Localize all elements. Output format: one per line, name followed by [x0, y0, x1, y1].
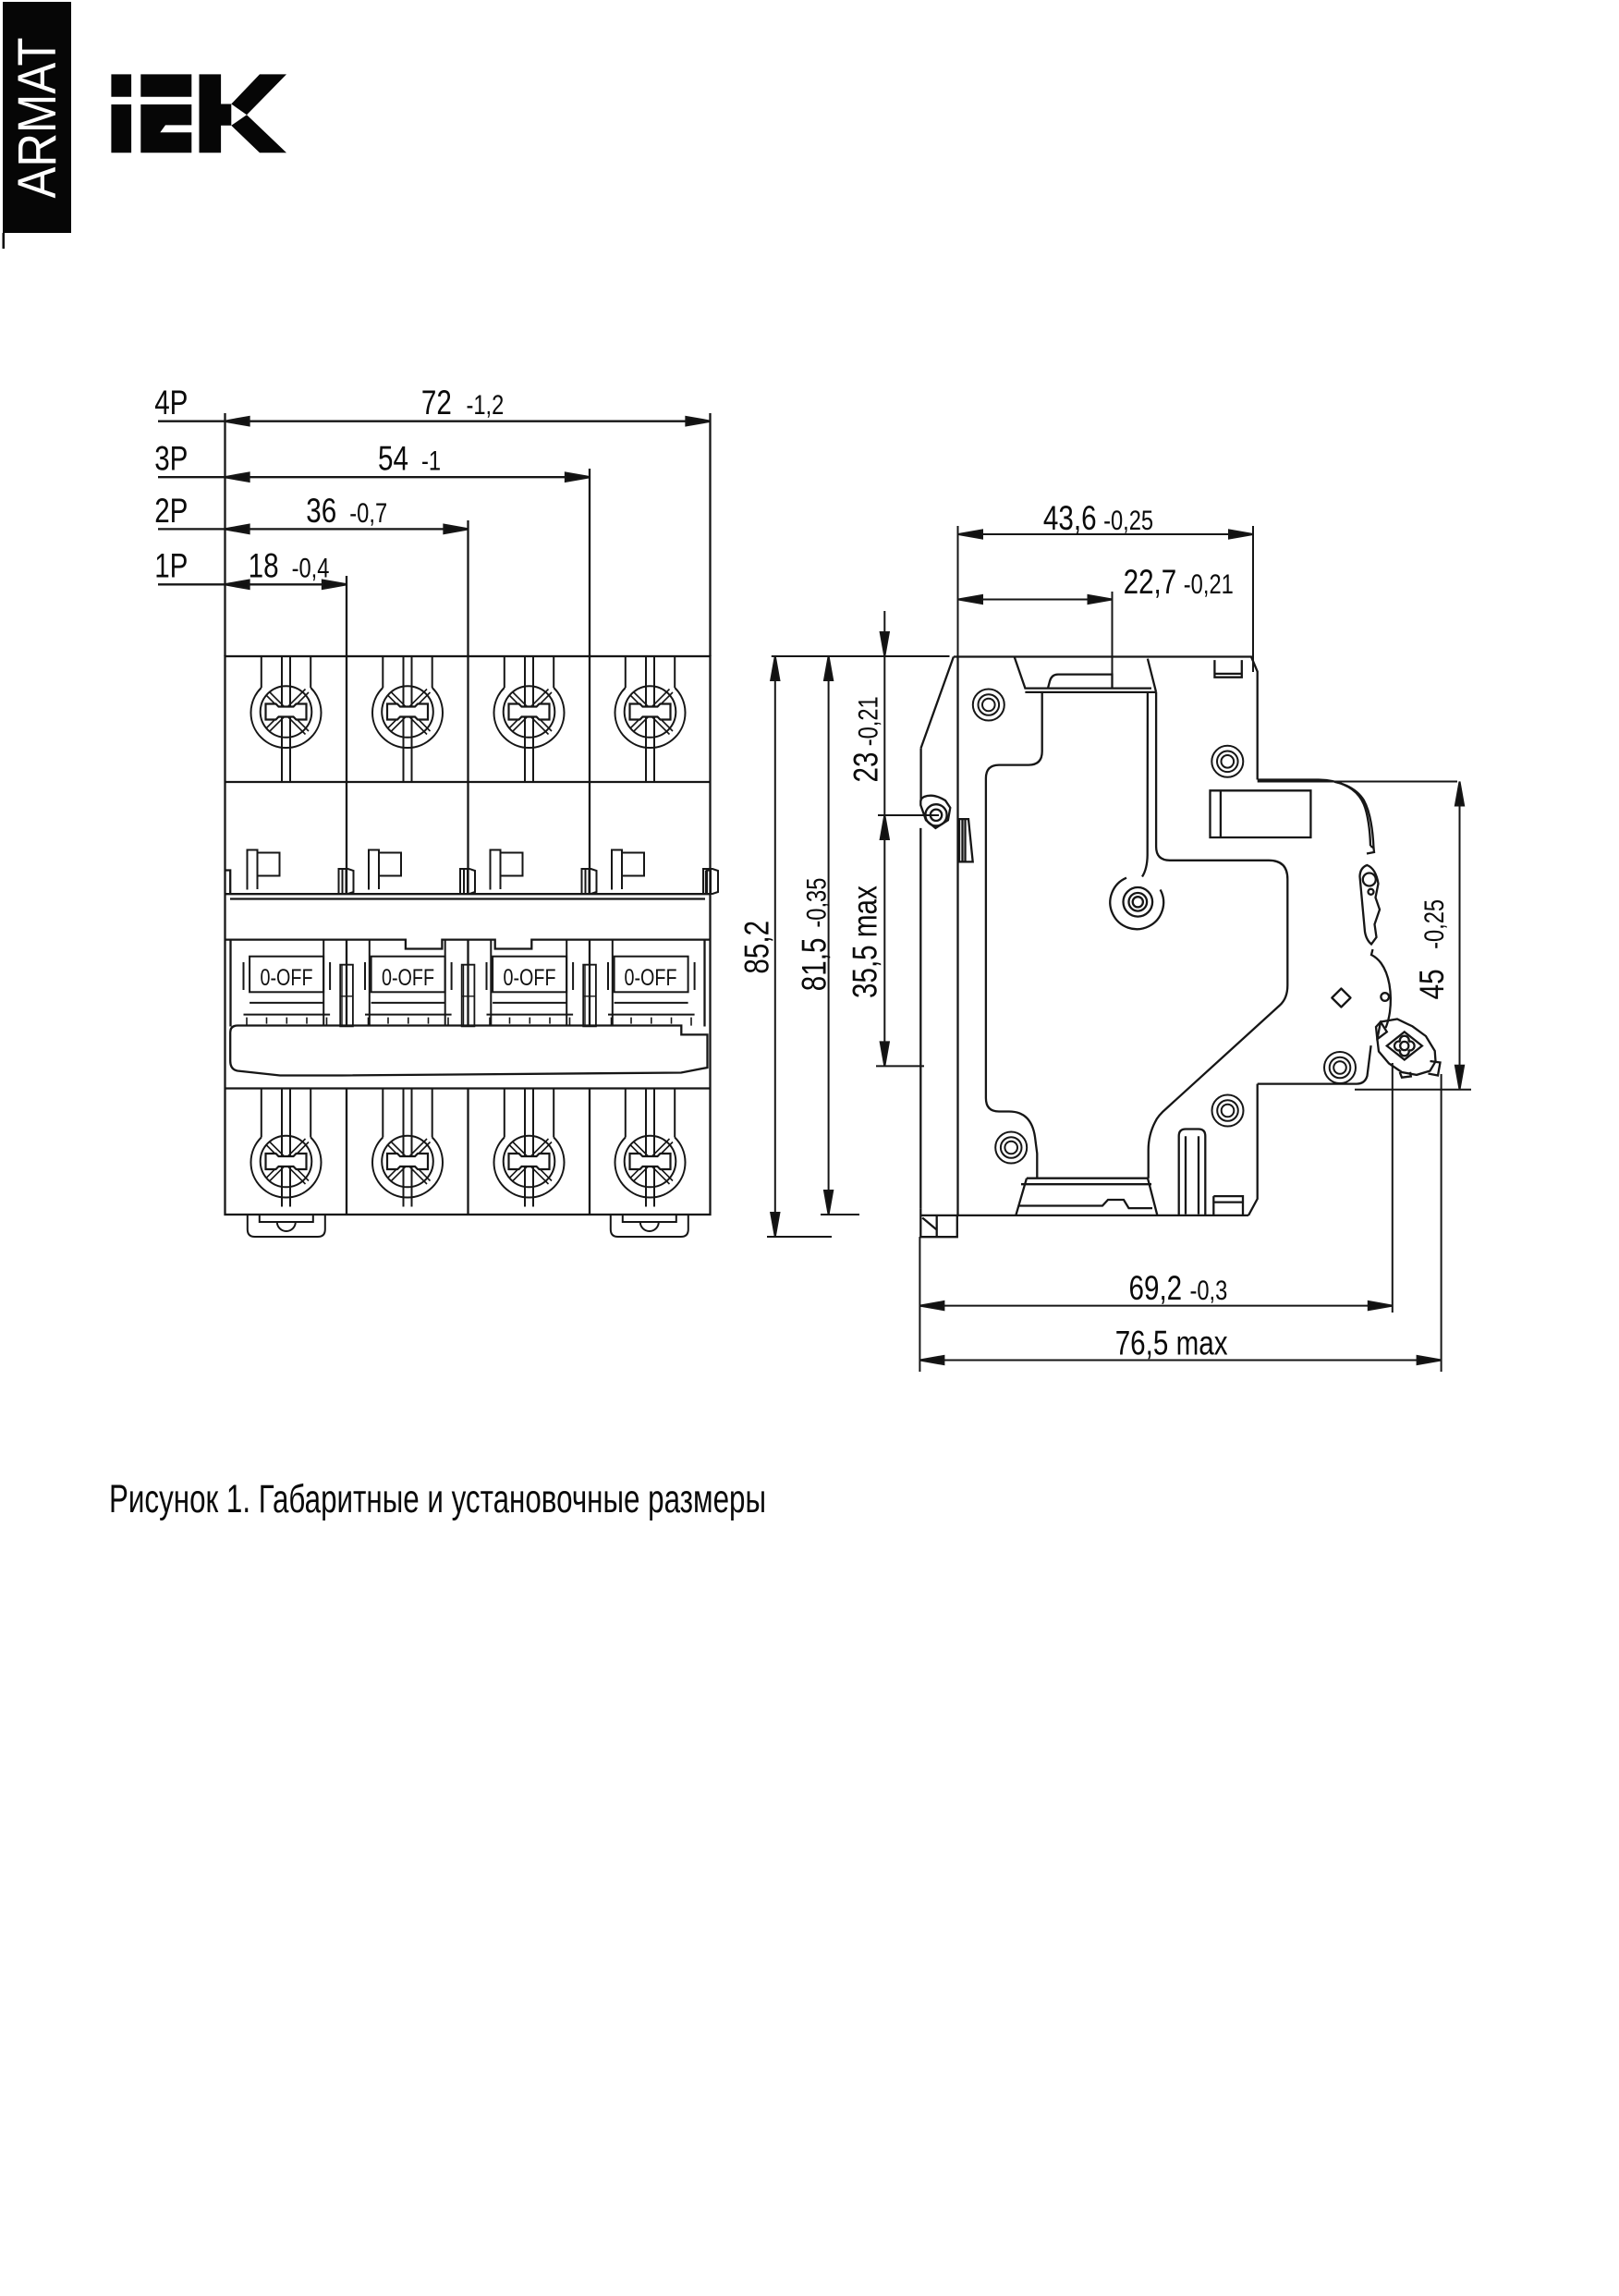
svg-text:-0,21: -0,21 [1184, 568, 1234, 599]
svg-text:35,5 max: 35,5 max [846, 885, 884, 998]
svg-text:54: 54 [378, 439, 408, 478]
svg-text:-1,2: -1,2 [467, 389, 505, 420]
svg-text:45: 45 [1413, 969, 1452, 999]
svg-text:-0,25: -0,25 [1418, 899, 1449, 949]
svg-text:0-OFF: 0-OFF [382, 965, 434, 991]
svg-text:3P: 3P [154, 439, 188, 478]
svg-text:-0,3: -0,3 [1190, 1275, 1228, 1305]
svg-text:1P: 1P [154, 546, 188, 585]
svg-text:23: 23 [846, 752, 885, 783]
svg-text:81,5: 81,5 [795, 938, 834, 992]
svg-text:4P: 4P [154, 384, 188, 422]
svg-text:69,2: 69,2 [1129, 1269, 1183, 1308]
svg-text:-0,4: -0,4 [292, 553, 330, 583]
svg-text:0-OFF: 0-OFF [260, 965, 312, 991]
svg-text:-0,35: -0,35 [801, 878, 832, 928]
svg-text:0-OFF: 0-OFF [503, 965, 555, 991]
svg-text:43,6: 43,6 [1043, 499, 1097, 538]
svg-text:72: 72 [421, 384, 452, 422]
svg-text:-1: -1 [421, 446, 441, 476]
svg-text:-0,7: -0,7 [349, 497, 387, 528]
svg-text:22,7: 22,7 [1124, 563, 1177, 602]
svg-text:76,5 max: 76,5 max [1115, 1324, 1228, 1362]
svg-text:85,2: 85,2 [737, 921, 776, 974]
svg-text:-0,25: -0,25 [1103, 505, 1153, 535]
svg-text:36: 36 [306, 492, 336, 531]
svg-text:-0,21: -0,21 [853, 696, 883, 746]
svg-text:Рисунок 1. Габаритные и устано: Рисунок 1. Габаритные и установочные раз… [109, 1477, 766, 1521]
svg-text:2P: 2P [154, 492, 188, 531]
svg-text:18: 18 [249, 546, 279, 585]
svg-text:0-OFF: 0-OFF [624, 965, 676, 991]
svg-text:ARMAT: ARMAT [7, 38, 67, 199]
